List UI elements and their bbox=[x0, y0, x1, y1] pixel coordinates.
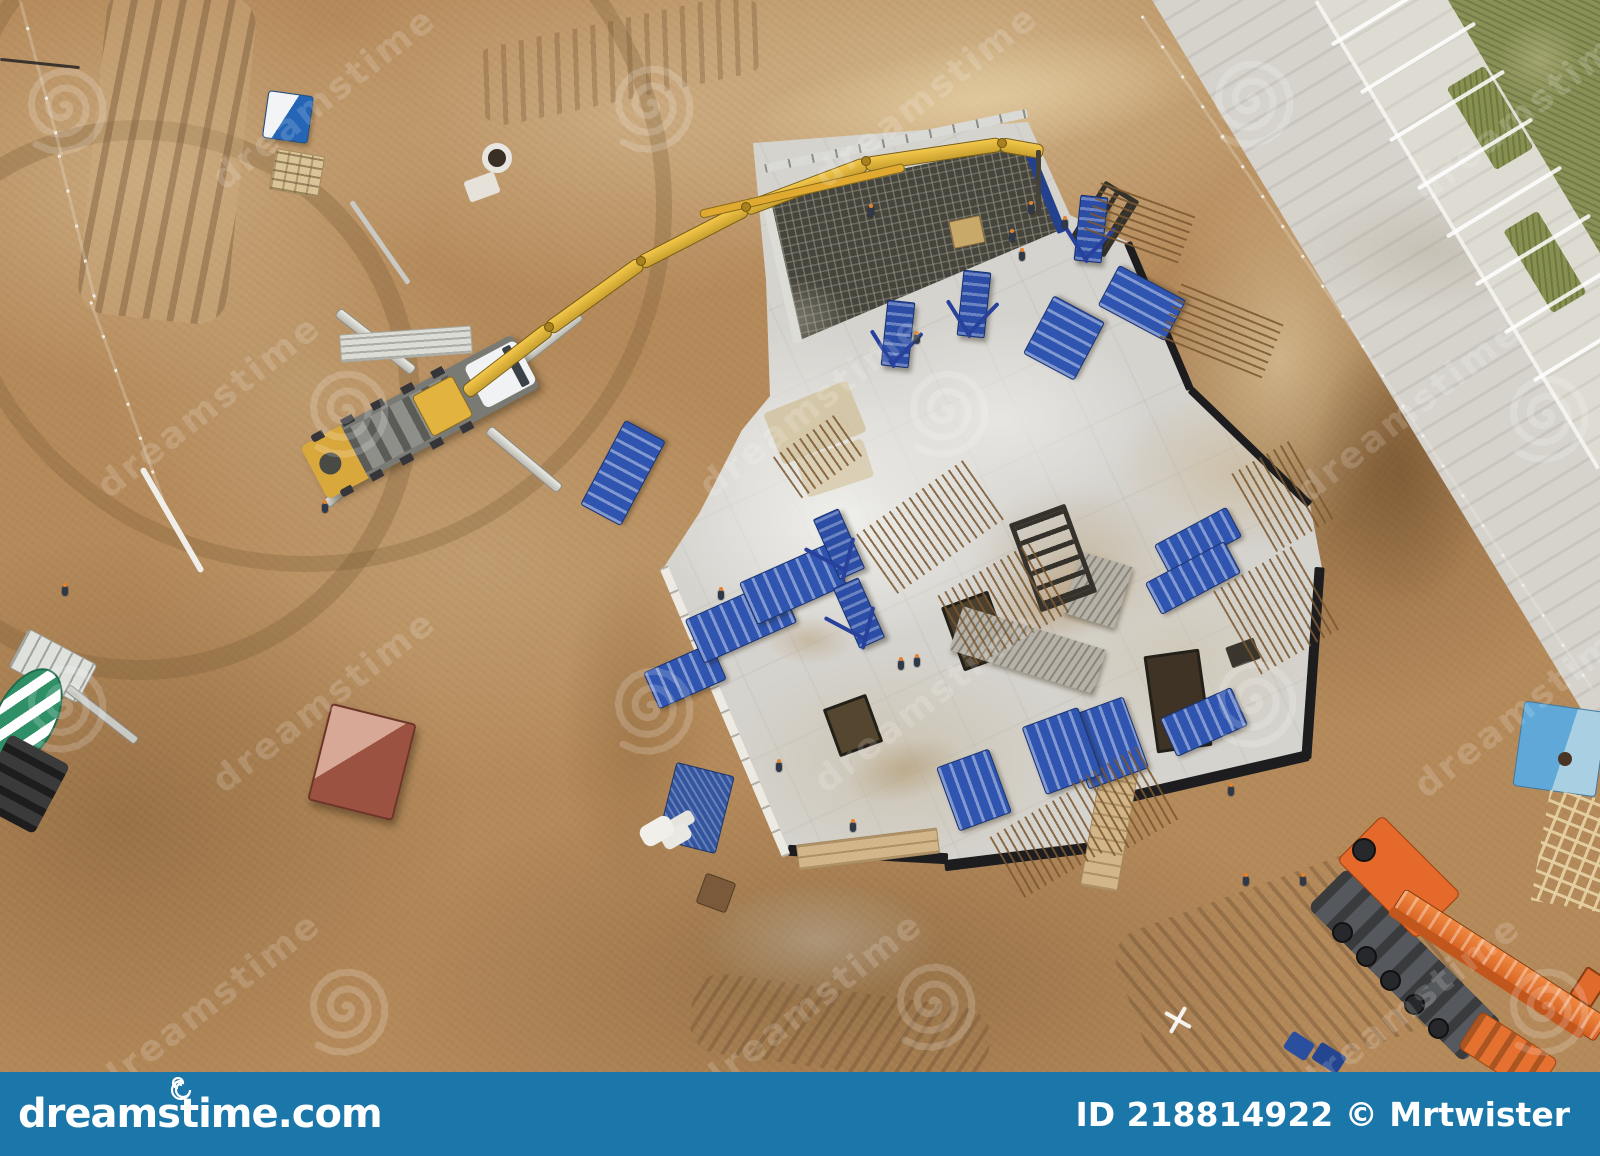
watermark-spiral-icon bbox=[1218, 64, 1289, 144]
dreamstime-logo-text: dreamstime.com bbox=[18, 1091, 382, 1137]
watermark-spiral-icon bbox=[1513, 972, 1584, 1052]
watermark-spiral-icon bbox=[618, 671, 689, 751]
watermark-spiral-icon bbox=[900, 967, 971, 1047]
footer-bar: dreamstime.com ID 218814922 © Mrtwister bbox=[0, 1072, 1600, 1156]
watermark-spirals bbox=[0, 0, 1600, 1072]
watermark-spiral-icon bbox=[31, 669, 102, 749]
aerial-construction-photo: dreamstimedreamstimedreamstimedreamstime… bbox=[0, 0, 1600, 1072]
watermark-spiral-icon bbox=[313, 972, 384, 1052]
dreamstime-logo-spiral-icon bbox=[168, 1077, 194, 1103]
stock-photo-page: dreamstimedreamstimedreamstimedreamstime… bbox=[0, 0, 1600, 1156]
watermark-spiral-icon bbox=[31, 71, 102, 151]
watermark-spiral-icon bbox=[1513, 379, 1584, 459]
image-credit: ID 218814922 © Mrtwister bbox=[1075, 1095, 1570, 1134]
watermark-spiral-icon bbox=[618, 69, 689, 149]
dreamstime-logo: dreamstime.com bbox=[18, 1091, 382, 1137]
watermark-spiral-icon bbox=[1221, 664, 1292, 744]
watermark-spiral-icon bbox=[913, 374, 984, 454]
watermark-spiral-icon bbox=[313, 374, 384, 454]
